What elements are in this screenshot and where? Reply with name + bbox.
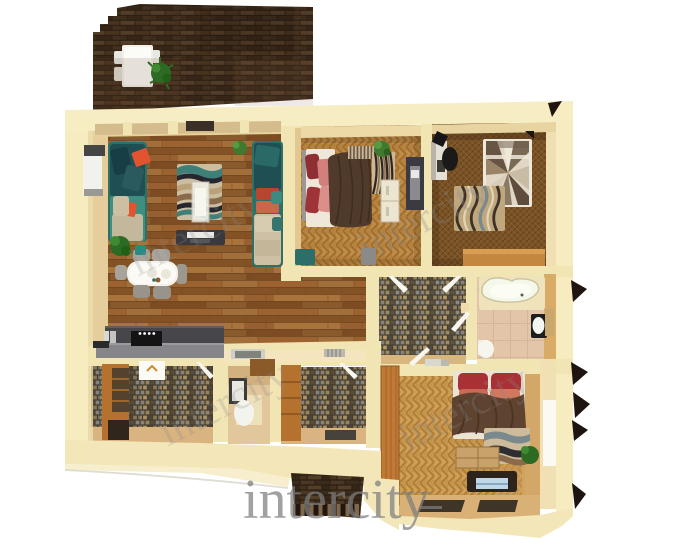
svg-text:intercity: intercity bbox=[243, 469, 430, 531]
